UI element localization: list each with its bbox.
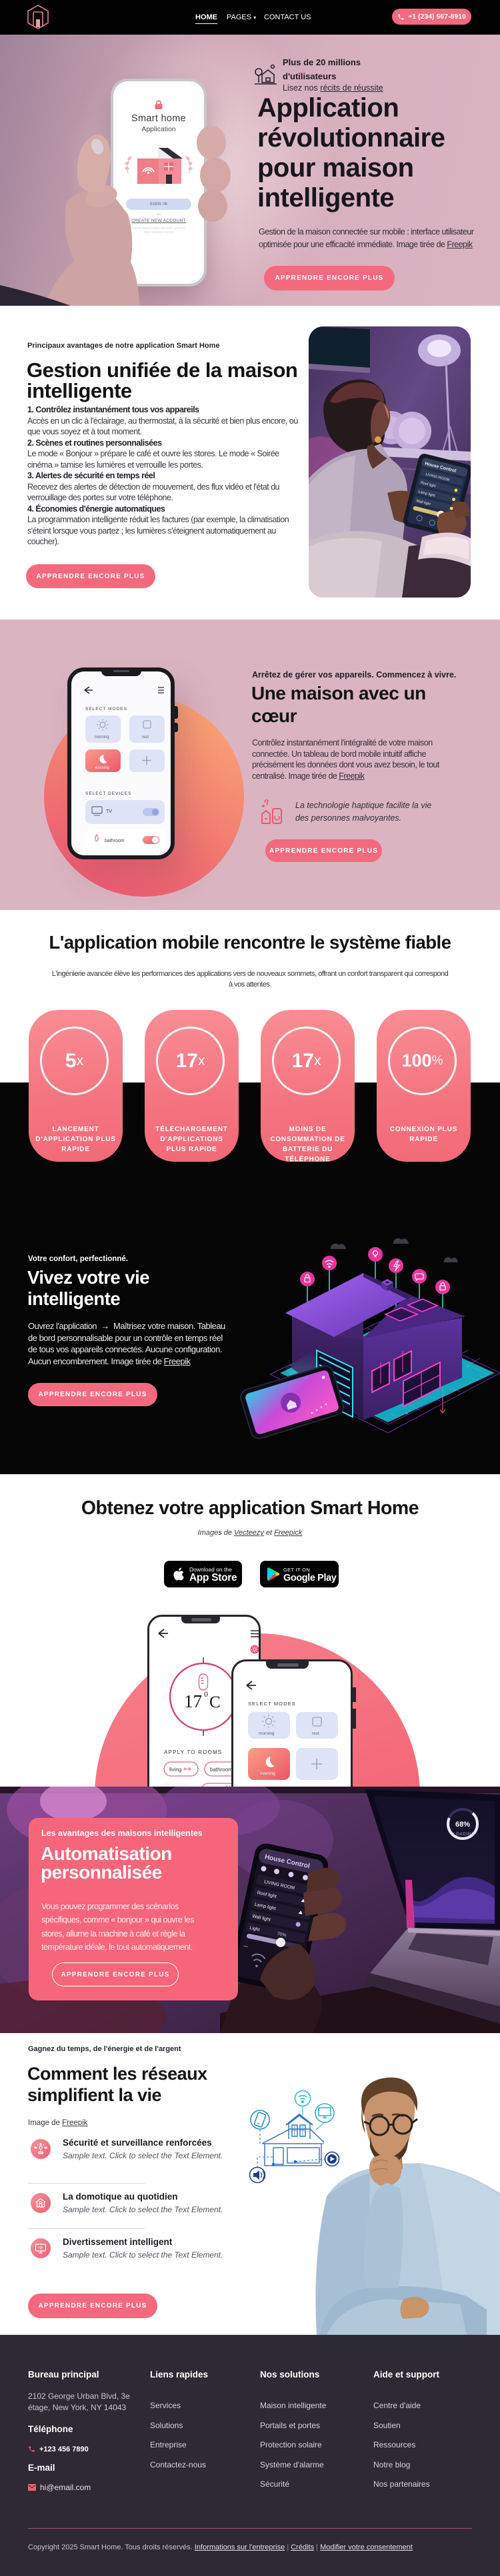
svg-text:SELECT MODES: SELECT MODES	[85, 707, 127, 711]
svg-text:68%: 68%	[455, 1821, 470, 1829]
svg-text:rest: rest	[142, 735, 149, 739]
svg-text:bathroom: bathroom	[105, 839, 125, 843]
svg-text:evening: evening	[95, 766, 109, 770]
svg-text:SELECT MODES: SELECT MODES	[248, 1701, 296, 1707]
svg-text:morning: morning	[259, 1731, 275, 1736]
svg-text:17: 17	[184, 1691, 202, 1711]
svg-text:evening: evening	[260, 1771, 275, 1776]
svg-text:SELECT DEVICES: SELECT DEVICES	[85, 791, 132, 796]
svg-text:APPLY TO ROOMS: APPLY TO ROOMS	[164, 1749, 222, 1755]
svg-text:bathroom: bathroom	[210, 1767, 233, 1773]
svg-text:TV: TV	[106, 809, 112, 814]
svg-text:C: C	[209, 1693, 221, 1711]
svg-text:rest: rest	[312, 1731, 319, 1736]
svg-text:living: living	[169, 1767, 181, 1773]
svg-text:LOADING: LOADING	[453, 1833, 475, 1837]
svg-text:morning: morning	[95, 735, 109, 739]
svg-text:0: 0	[204, 1689, 208, 1699]
